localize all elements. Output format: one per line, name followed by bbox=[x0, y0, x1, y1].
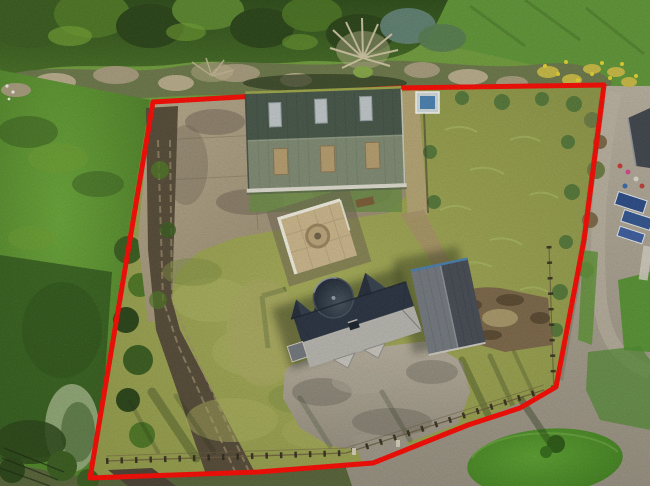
grain-overlay-light bbox=[0, 0, 650, 486]
aerial-photo-frame bbox=[0, 0, 650, 486]
aerial-photo bbox=[0, 0, 650, 486]
